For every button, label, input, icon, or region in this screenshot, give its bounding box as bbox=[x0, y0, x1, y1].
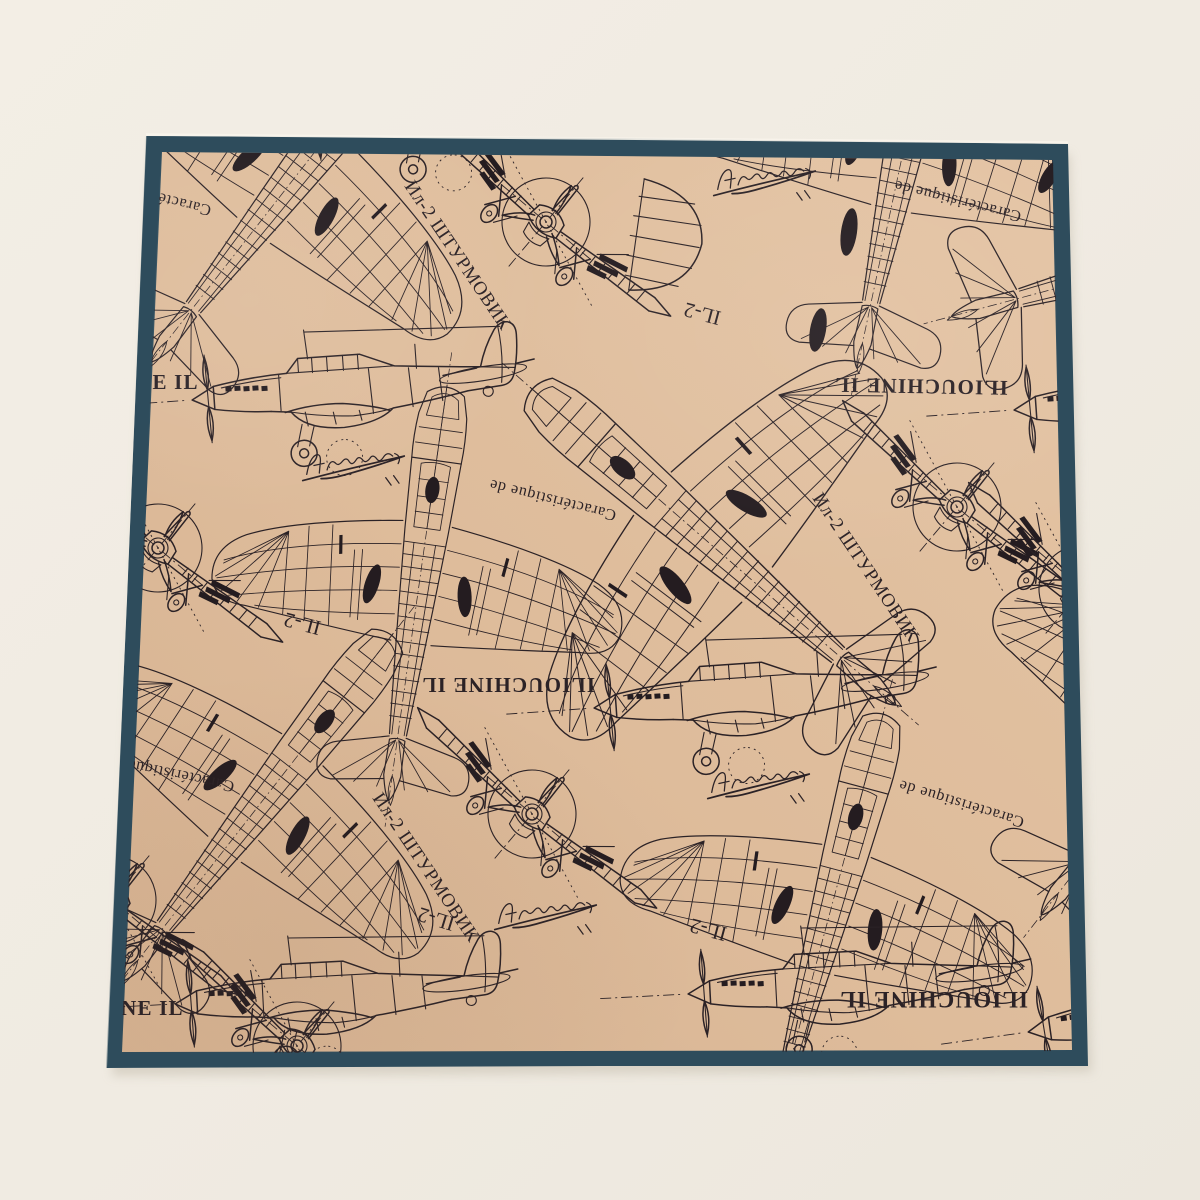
svg-text:ILIOUCHINE IL: ILIOUCHINE IL bbox=[839, 987, 1028, 1012]
